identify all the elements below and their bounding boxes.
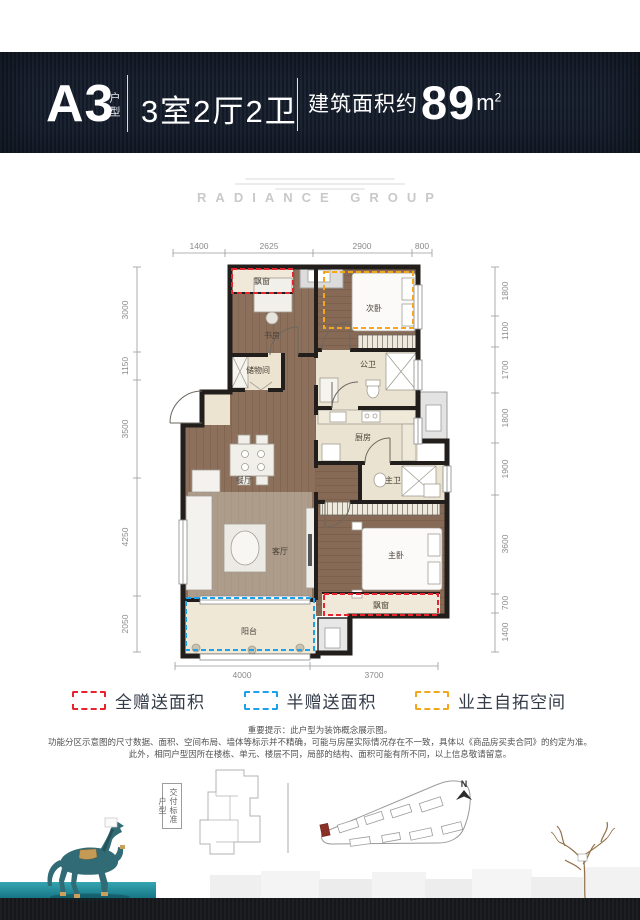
legend-item-half-gift: 半赠送面积 <box>244 688 377 713</box>
dim-bottom-0: 4000 <box>233 670 252 680</box>
dim-right-0: 1800 <box>500 281 510 300</box>
header-band: A3 户型 3室2厅2卫 建筑面积约 89 m2 <box>0 52 640 153</box>
area-number: 89 <box>421 75 475 130</box>
dim-top-2: 2900 <box>353 241 372 251</box>
dim-left-1: 1150 <box>120 357 130 376</box>
site-plan <box>320 781 470 846</box>
room-label-master-bedroom: 主卧 <box>388 550 404 560</box>
room-label-dining: 餐厅 <box>236 476 252 485</box>
dim-top-3: 800 <box>415 241 429 251</box>
brand-watermark: RADIANCE GROUP <box>0 190 640 205</box>
room-label-bay-window-1: 飘窗 <box>254 276 270 286</box>
room-label-master-bathroom: 主卫 <box>385 475 401 485</box>
disclaimer: 重要提示：此户型为装饰概念展示图。 功能分区示意图的尺寸数据、面积、空间布局、墙… <box>20 724 620 760</box>
dim-right-4: 1900 <box>500 459 510 478</box>
legend-label-owner-expand: 业主自拓空间 <box>458 688 566 713</box>
north-label: N <box>461 779 468 789</box>
dim-right-6: 700 <box>500 596 510 610</box>
room-label-living: 客厅 <box>272 546 288 556</box>
floorplan: 飘窗 书房 次卧 储物间 公卫 厨房 餐厅 主卫 客厅 主卧 飘窗 阳台 140… <box>0 240 640 685</box>
room-label-storage: 储物间 <box>246 365 270 375</box>
disclaimer-line-1: 重要提示：此户型为装饰概念展示图。 <box>20 724 620 736</box>
dim-left-4: 2050 <box>120 614 130 633</box>
legend-swatch-owner-expand <box>415 691 449 710</box>
legend-swatch-full-gift <box>72 691 106 710</box>
header-divider-2 <box>297 78 298 131</box>
legend-item-full-gift: 全赠送面积 <box>72 688 205 713</box>
room-label-study: 书房 <box>264 330 280 340</box>
legend-label-half-gift: 半赠送面积 <box>287 688 377 713</box>
disclaimer-line-3: 此外，相同户型因所在楼栋、单元、楼层不同，局部的结构、面积可能有所不同，以上信息… <box>20 748 620 760</box>
delivery-standard-plan <box>200 770 260 854</box>
unit-layout: 3室2厅2卫 <box>141 86 298 131</box>
dim-bottom-1: 3700 <box>365 670 384 680</box>
dim-right-5: 3600 <box>500 534 510 553</box>
room-label-bay-window-2: 飘窗 <box>373 600 389 610</box>
room-label-balcony: 阳台 <box>241 626 257 636</box>
legend-item-owner-expand: 业主自拓空间 <box>415 688 566 713</box>
dim-right-2: 1700 <box>500 360 510 379</box>
dim-right-7: 1400 <box>500 622 510 641</box>
disclaimer-line-2: 功能分区示意图的尺寸数据、面积、空间布局、墙体等标示并不精确，可能与房屋实际情况… <box>20 736 620 748</box>
dim-left-2: 3500 <box>120 419 130 438</box>
footer-art: N <box>0 760 640 920</box>
area-label: 建筑面积约 <box>308 88 418 118</box>
delivery-standard-label: 交付标准户型 <box>162 783 182 829</box>
dim-left-3: 4250 <box>120 527 130 546</box>
dim-right-1: 1100 <box>500 322 510 341</box>
base-strip <box>0 898 640 920</box>
area-group: 建筑面积约 89 m2 <box>308 52 501 153</box>
dim-left-0: 3000 <box>120 300 130 319</box>
decor-blocks <box>210 867 640 898</box>
unit-code-suffix: 户型 <box>106 92 122 120</box>
header-divider-1 <box>127 75 128 132</box>
dim-top-1: 2625 <box>260 241 279 251</box>
area-unit: m2 <box>476 90 501 116</box>
legend-label-full-gift: 全赠送面积 <box>115 688 205 713</box>
room-label-second-bedroom: 次卧 <box>366 303 382 313</box>
poster: A3 户型 3室2厅2卫 建筑面积约 89 m2 RADIANCE GROUP <box>0 0 640 920</box>
legend: 全赠送面积 半赠送面积 业主自拓空间 <box>72 688 566 713</box>
legend-swatch-half-gift <box>244 691 278 710</box>
dim-top-0: 1400 <box>190 241 209 251</box>
decor-small-square <box>105 818 117 827</box>
room-label-guest-bathroom: 公卫 <box>360 360 376 369</box>
unit-code: A3 <box>46 74 114 134</box>
room-label-kitchen: 厨房 <box>355 432 371 442</box>
dim-right-3: 1800 <box>500 408 510 427</box>
